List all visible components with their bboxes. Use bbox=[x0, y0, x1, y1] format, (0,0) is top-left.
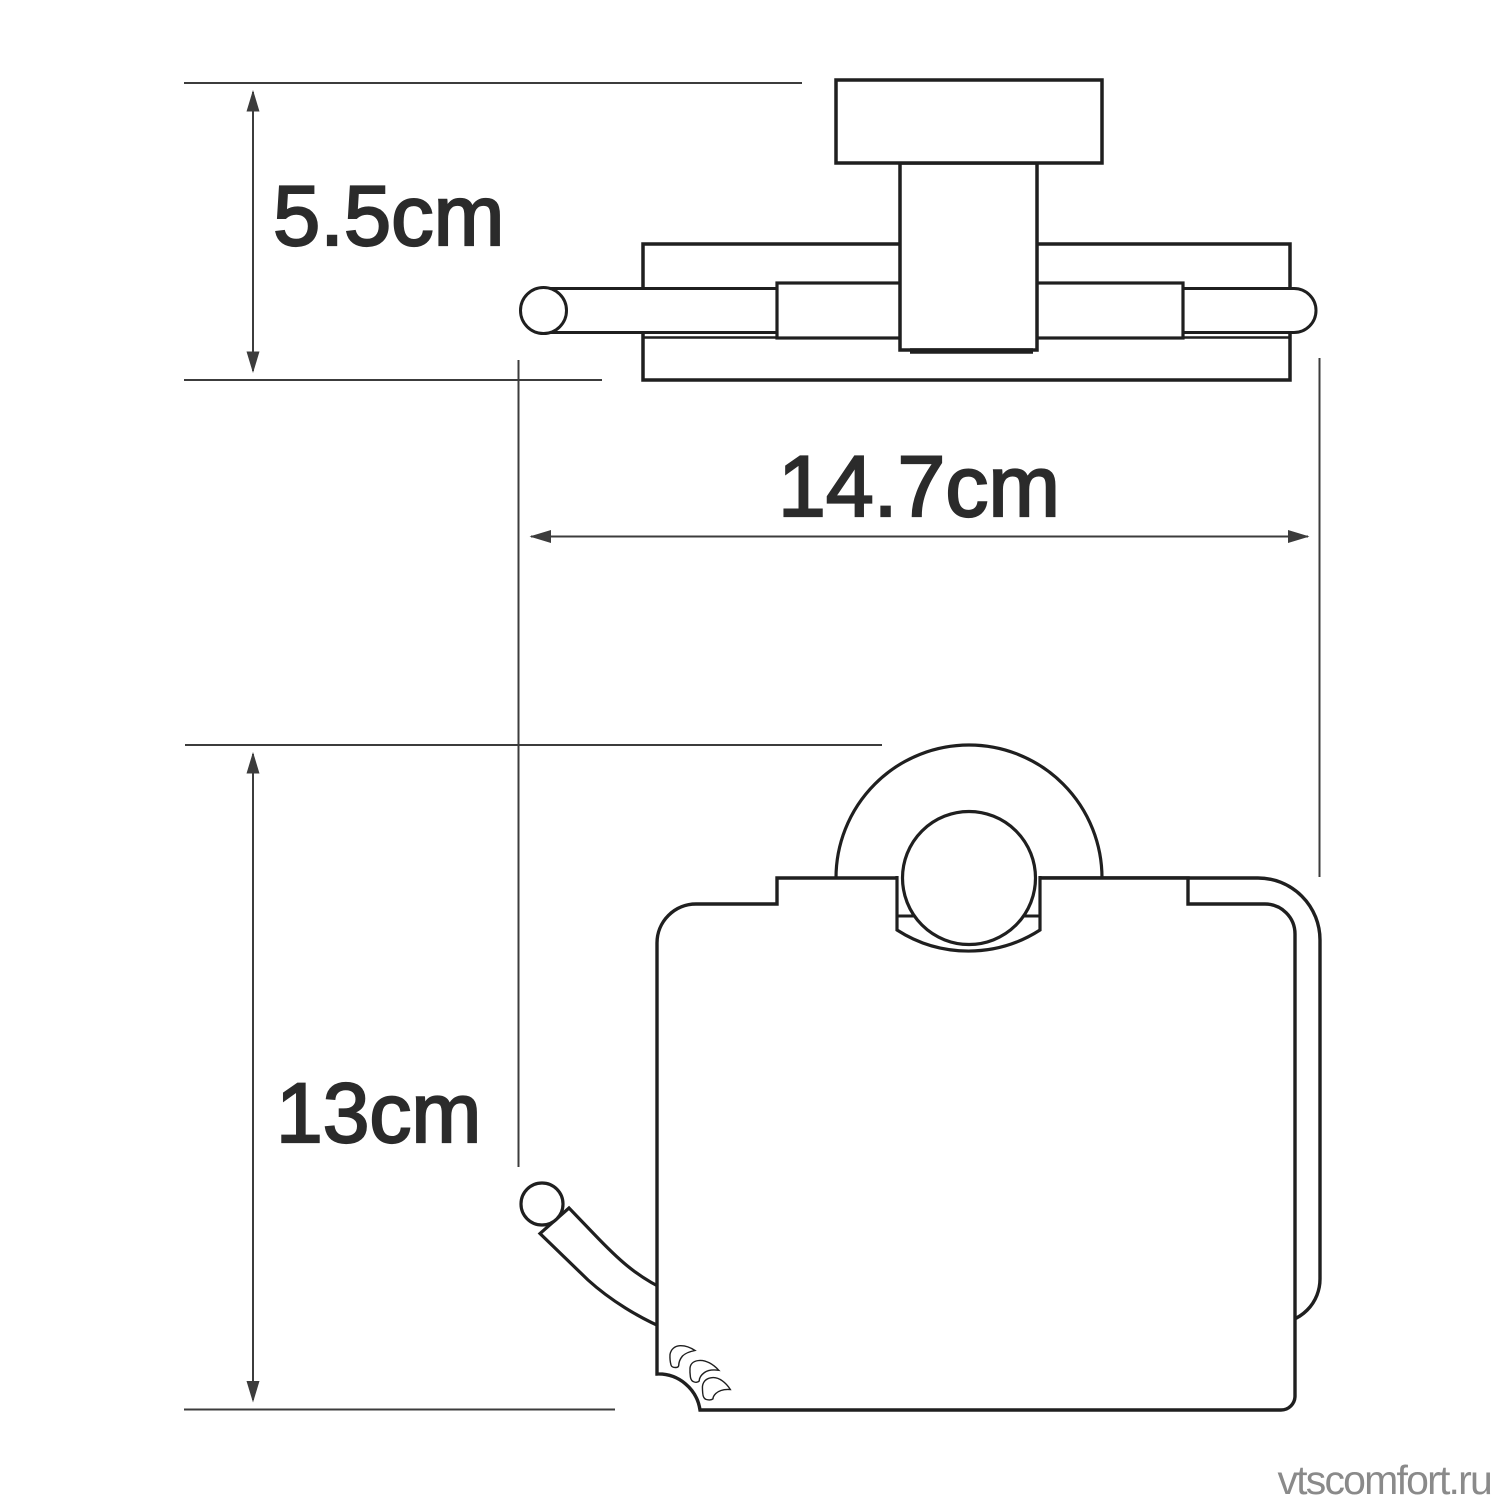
svg-text:14.7cm: 14.7cm bbox=[778, 439, 1060, 535]
svg-text:vtscomfort.ru: vtscomfort.ru bbox=[1277, 1457, 1491, 1503]
svg-text:5.5cm: 5.5cm bbox=[273, 169, 504, 264]
svg-text:13cm: 13cm bbox=[276, 1066, 481, 1160]
